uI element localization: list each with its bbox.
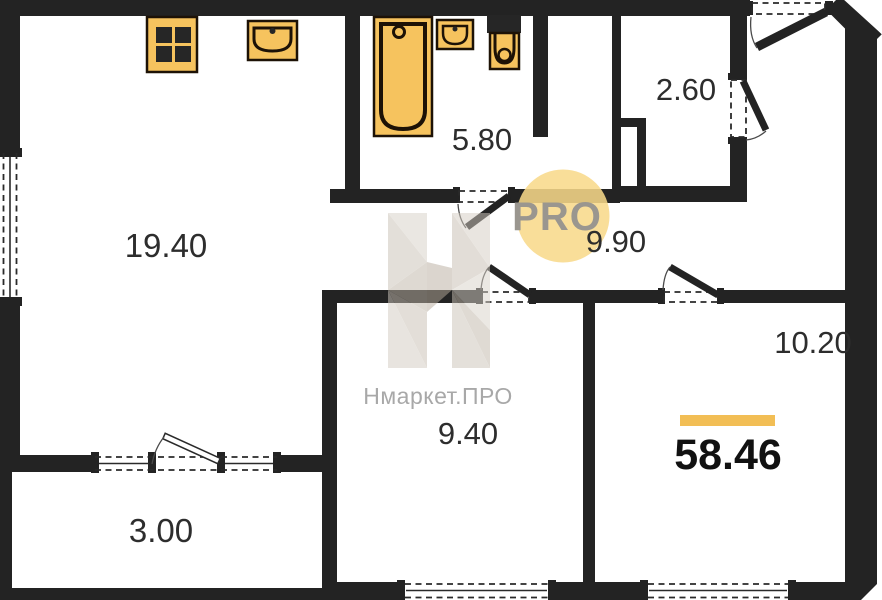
watermark-logo xyxy=(388,213,490,368)
area-label-living-room: 19.40 xyxy=(125,227,208,264)
toilet-icon xyxy=(487,15,521,69)
bedroom-door xyxy=(663,267,718,302)
floor-plan-canvas: Нмаркет.ПРО PRO 19.40 5.80 2.60 9.90 10.… xyxy=(0,0,882,600)
entrance-door xyxy=(751,3,826,48)
balcony-door xyxy=(152,433,220,464)
window-left-wall xyxy=(4,153,17,297)
total-area-value: 58.46 xyxy=(674,431,782,479)
watermark-brand-text: Нмаркет.ПРО xyxy=(363,383,513,409)
total-area-block: 58.46 xyxy=(674,415,782,479)
area-label-room: 9.40 xyxy=(438,416,498,451)
floor-plan: Нмаркет.ПРО PRO 19.40 5.80 2.60 9.90 10.… xyxy=(0,0,882,600)
stove-icon xyxy=(147,17,197,72)
kitchen-sink-icon xyxy=(248,21,297,60)
area-label-hallway: 9.90 xyxy=(586,224,646,259)
storage-door xyxy=(731,80,766,140)
window-balcony-band xyxy=(95,457,277,470)
window-bottom-bedroom xyxy=(648,584,788,598)
area-label-bathroom: 5.80 xyxy=(452,122,512,157)
fixtures xyxy=(147,15,521,136)
area-label-bedroom: 10.20 xyxy=(774,325,852,360)
window-bottom-room xyxy=(405,584,548,598)
area-label-balcony: 3.00 xyxy=(129,512,193,549)
bath-sink-icon xyxy=(437,20,473,49)
total-area-accent-bar xyxy=(680,415,775,426)
bathtub-icon xyxy=(374,17,432,136)
area-label-storage: 2.60 xyxy=(656,72,716,107)
